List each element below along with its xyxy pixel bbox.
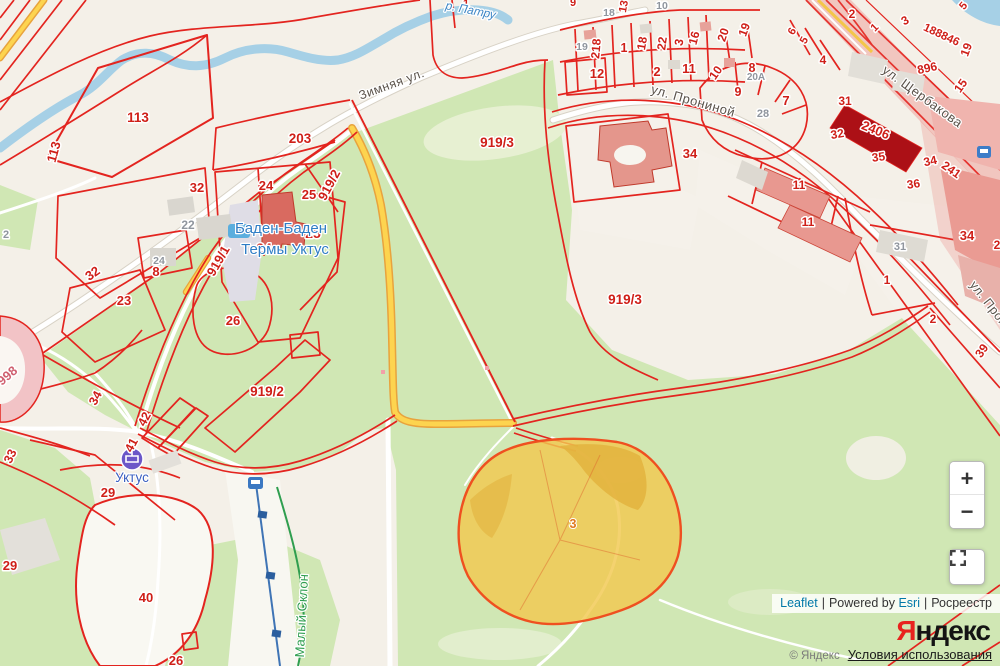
zoom-control: + −: [949, 461, 985, 529]
map-label: 919/3: [480, 135, 514, 150]
leaflet-link[interactable]: Leaflet: [780, 596, 818, 610]
map-label: Уктус: [115, 470, 149, 485]
fullscreen-icon: [950, 550, 966, 566]
yandex-copyright-text: © Яндекс: [789, 650, 839, 662]
map-label: 188846: [921, 22, 961, 49]
map-label: 6: [786, 26, 799, 37]
map-label: 203: [289, 131, 312, 146]
map-label: 25: [302, 187, 316, 202]
map-label: 26: [169, 653, 183, 666]
map-label: 23: [117, 293, 131, 308]
map-label: 31: [894, 241, 906, 253]
map-artwork: 113113203919/2919/1919/3919/3919/2322425…: [0, 0, 1000, 666]
rosreestr-text: Росреестр: [931, 596, 992, 610]
map-label: 2: [849, 7, 856, 21]
yandex-copyright: © ЯндексУсловия использования: [789, 647, 992, 662]
attribution-separator: |: [822, 596, 825, 610]
map-label: 2: [994, 238, 1000, 252]
map-label: Баден-Баден: [235, 220, 327, 237]
map-label: 28: [757, 108, 769, 120]
map-label: Термы Уктус: [241, 241, 329, 258]
map-label: 20А: [747, 72, 765, 83]
map-label: 9: [735, 85, 742, 99]
lift-station-icon: [248, 477, 263, 489]
map-label: 35: [871, 149, 886, 165]
map-label: 32: [190, 180, 204, 195]
map-label: 919/3: [608, 292, 642, 307]
zoom-in-button[interactable]: +: [950, 462, 984, 495]
map-label: 919/2: [250, 384, 284, 399]
map-label: 3: [672, 37, 687, 46]
zoom-out-button[interactable]: −: [950, 495, 984, 528]
map-label: 1: [884, 273, 891, 287]
esri-link[interactable]: Esri: [898, 596, 920, 610]
map-label: 19: [576, 41, 588, 53]
map-label: 26: [226, 313, 240, 328]
attribution-separator: |: [924, 596, 927, 610]
map-dot: [485, 366, 489, 370]
map-label: 11: [802, 215, 815, 229]
map-label: 16: [686, 29, 703, 46]
map-label: 24: [153, 255, 165, 267]
map-label: 7: [782, 93, 789, 108]
map-label: 22: [654, 36, 670, 51]
map-label: 19: [957, 41, 975, 59]
map-label: 896: [916, 59, 939, 77]
map-label: 34: [960, 228, 975, 243]
map-label: 3: [899, 13, 912, 29]
map-label: 11: [793, 178, 806, 192]
map-label: 29: [101, 485, 115, 500]
yandex-logo[interactable]: Яндекс: [896, 617, 990, 645]
map-label: 113: [44, 140, 64, 164]
map-label: 20: [714, 26, 732, 43]
map-label: 40: [139, 590, 153, 605]
map-label: 5: [798, 35, 811, 46]
map-label: 36: [906, 176, 921, 192]
map-label: 9: [570, 0, 576, 9]
yandex-logo-first-letter: Я: [896, 615, 915, 646]
attribution-bar: Leaflet|Powered by Esri|Росреестр: [772, 594, 1000, 613]
map-label: 12: [590, 66, 604, 81]
map-canvas[interactable]: 113113203919/2919/1919/3919/3919/2322425…: [0, 0, 1000, 666]
map-label: 19: [735, 21, 753, 39]
map-label: 18: [634, 35, 650, 51]
map-label: 34: [683, 146, 698, 161]
map-label: 1: [621, 41, 628, 55]
map-label: 24: [259, 178, 274, 193]
map-label: 31: [838, 94, 852, 108]
map-label: 11: [682, 61, 696, 76]
terms-of-use-link[interactable]: Условия использования: [848, 647, 992, 662]
powered-by-text: Powered by: [829, 596, 895, 610]
map-label: 3: [570, 517, 577, 531]
map-label: 113: [127, 110, 149, 125]
map-label: 13: [617, 0, 631, 14]
map-label: 29: [3, 558, 17, 573]
map-label: 2: [3, 229, 9, 241]
fullscreen-button[interactable]: [949, 549, 985, 585]
map-label: 2: [653, 64, 660, 79]
map-label: 15: [951, 76, 970, 95]
yandex-logo-rest: ндекс: [916, 615, 990, 646]
map-label: 218: [588, 38, 604, 59]
map-dot: [381, 370, 385, 374]
map-label: 10: [656, 0, 668, 12]
map-label: 4: [820, 53, 827, 67]
map-label: Зимняя ул.: [357, 66, 426, 103]
bus-stop-icon: [977, 146, 991, 158]
map-label: 2: [930, 312, 937, 326]
map-label: р. Патру: [443, 0, 498, 22]
map-label: 18: [603, 7, 615, 19]
map-label: 22: [181, 218, 195, 232]
selected-parcel-3[interactable]: [459, 439, 681, 624]
map-label: 32: [830, 126, 846, 142]
